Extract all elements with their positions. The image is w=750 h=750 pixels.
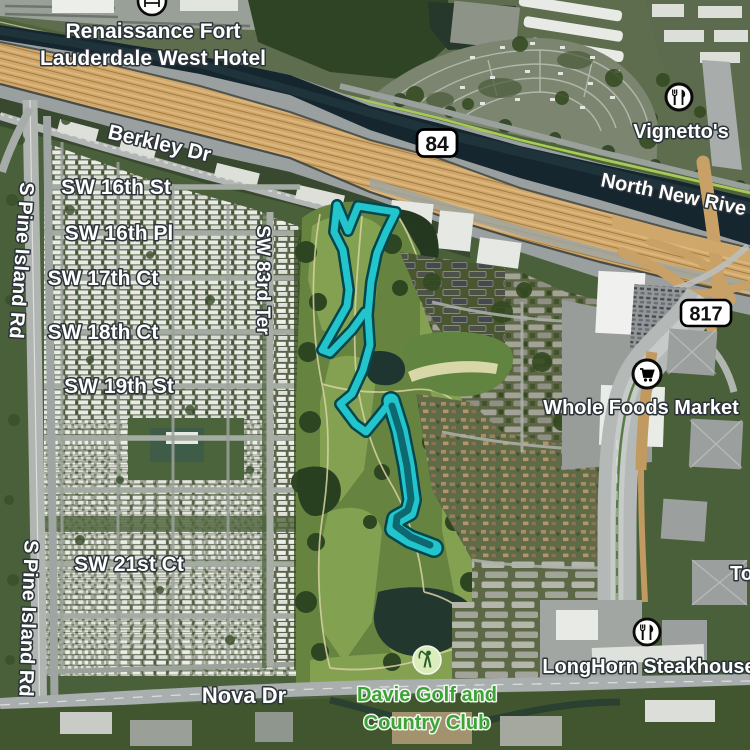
svg-text:Whole Foods Market: Whole Foods Market xyxy=(543,397,739,419)
svg-text:SW 17th Ct: SW 17th Ct xyxy=(48,267,159,290)
svg-text:To: To xyxy=(730,563,750,585)
svg-text:SW 16th St: SW 16th St xyxy=(61,176,171,199)
svg-text:LongHorn Steakhouse: LongHorn Steakhouse xyxy=(542,656,750,678)
svg-text:817: 817 xyxy=(689,304,722,326)
svg-text:Davie Golf and: Davie Golf and xyxy=(357,684,497,706)
svg-text:84: 84 xyxy=(425,133,449,156)
svg-text:SW 19th St: SW 19th St xyxy=(64,375,174,398)
svg-text:Renaissance Fort: Renaissance Fort xyxy=(65,20,240,43)
svg-text:Country Club: Country Club xyxy=(364,712,491,734)
svg-text:Vignetto's: Vignetto's xyxy=(633,121,729,143)
svg-text:Nova Dr: Nova Dr xyxy=(202,683,287,708)
svg-text:SW 21st Ct: SW 21st Ct xyxy=(74,553,184,576)
svg-text:Lauderdale West Hotel: Lauderdale West Hotel xyxy=(40,47,266,70)
svg-text:SW 18th Ct: SW 18th Ct xyxy=(48,321,159,344)
svg-text:SW 83rd Ter: SW 83rd Ter xyxy=(252,225,273,335)
svg-text:SW 16th Pl: SW 16th Pl xyxy=(65,222,174,245)
